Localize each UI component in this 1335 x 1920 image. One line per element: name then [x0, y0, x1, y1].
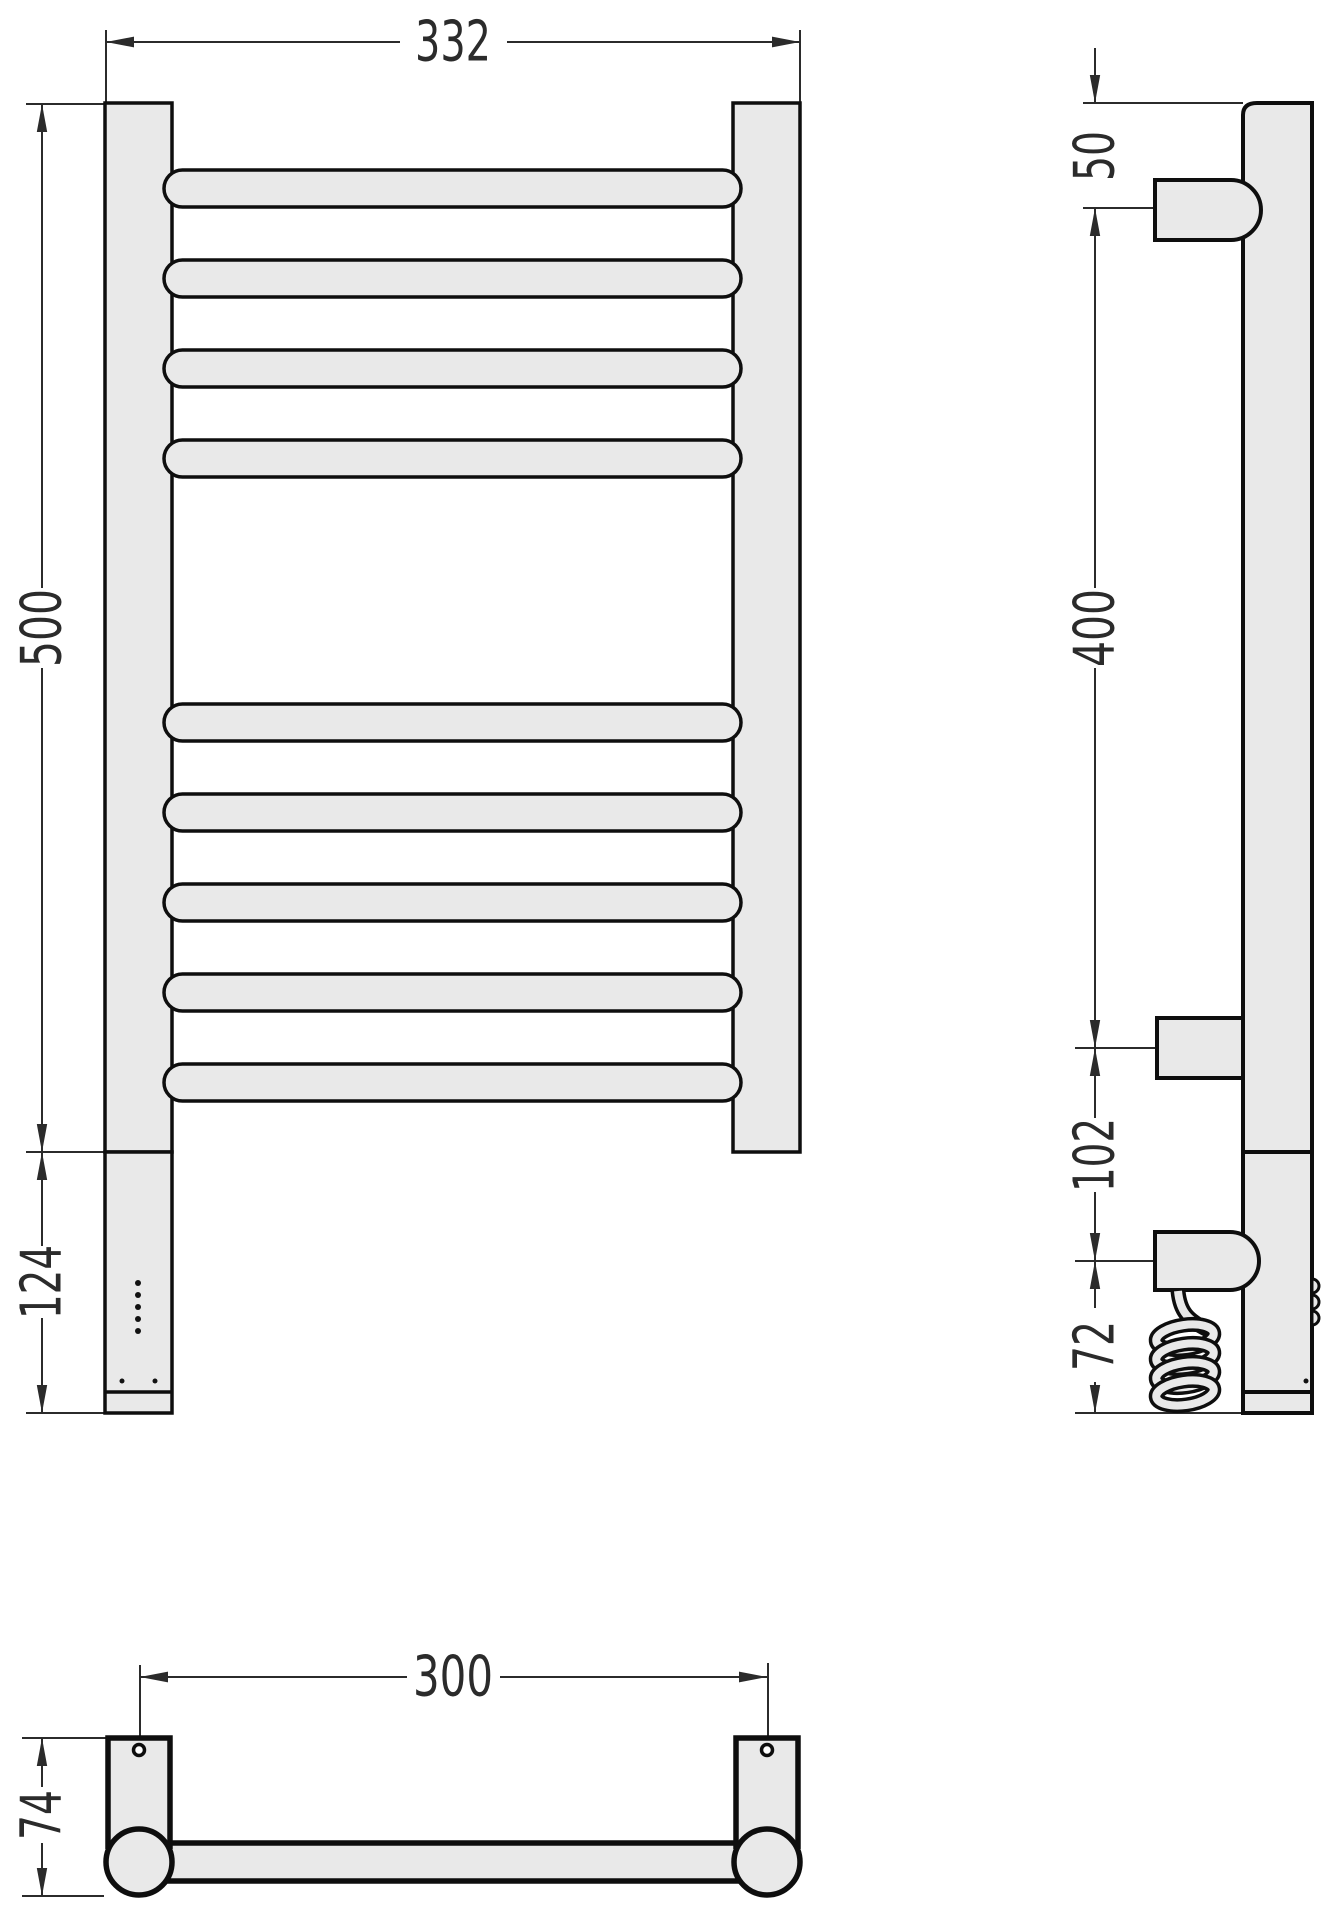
dim-label-front-lower-height: 124	[10, 1245, 75, 1319]
arrowhead	[1090, 1020, 1100, 1048]
towel-rail-technical-drawing: 332 500 124 50 400 102 72 300 74	[0, 0, 1335, 1920]
wall-bracket-middle	[1157, 1018, 1243, 1078]
side-rail-lower	[1243, 1152, 1312, 1413]
thread-bump	[1312, 1311, 1319, 1325]
side-rail-upper	[1243, 103, 1312, 1152]
led-dot	[135, 1304, 141, 1310]
rung	[164, 884, 741, 921]
screw-dot	[120, 1379, 125, 1384]
thread-bump	[1312, 1295, 1319, 1309]
arrowhead	[1090, 208, 1100, 236]
side-view	[1155, 103, 1319, 1413]
dim-label-side-bracket-span: 400	[1063, 589, 1128, 667]
arrowhead	[739, 1672, 767, 1683]
dim-label-side-top-offset: 50	[1063, 131, 1128, 181]
mount-hole	[762, 1745, 773, 1756]
screw-dot	[1304, 1379, 1309, 1384]
rung	[164, 794, 741, 831]
arrowhead	[37, 104, 47, 132]
arrowhead	[1090, 75, 1100, 103]
dim-label-side-lower-gap: 102	[1063, 1118, 1128, 1192]
screw-dot	[153, 1379, 158, 1384]
arrowhead	[1090, 1261, 1100, 1289]
dim-label-depth: 74	[10, 1790, 75, 1840]
dim-label-side-bottom: 72	[1063, 1321, 1128, 1371]
bottom-rail-bar	[139, 1843, 767, 1881]
bottom-view	[106, 1738, 800, 1895]
dim-label-front-height: 500	[10, 589, 75, 667]
arrowhead	[37, 1868, 47, 1896]
coiled-cable	[1155, 1291, 1216, 1409]
post-end-circle	[106, 1829, 172, 1895]
rung	[164, 350, 741, 387]
arrowhead	[772, 37, 800, 48]
rung	[164, 1064, 741, 1101]
arrowhead	[37, 1124, 47, 1152]
front-left-post	[105, 103, 172, 1152]
post-end-circle	[734, 1829, 800, 1895]
drawing-page: 332 500 124 50 400 102 72 300 74	[0, 0, 1335, 1920]
led-dot	[135, 1328, 141, 1334]
wall-bracket-top	[1155, 180, 1261, 240]
arrowhead	[37, 1738, 47, 1766]
wall-bracket-bottom	[1155, 1232, 1259, 1290]
dim-label-front-width: 332	[415, 10, 491, 75]
arrowhead	[1090, 1385, 1100, 1413]
rung	[164, 170, 741, 207]
arrowhead	[1090, 1048, 1100, 1076]
rung	[164, 440, 741, 477]
front-right-post	[733, 103, 800, 1152]
arrowhead	[140, 1672, 168, 1683]
thread-bump	[1312, 1279, 1319, 1293]
arrowhead	[1090, 1233, 1100, 1261]
mount-hole	[134, 1745, 145, 1756]
rung	[164, 704, 741, 741]
rung	[164, 260, 741, 297]
led-dot	[135, 1292, 141, 1298]
dim-label-mount-spacing: 300	[413, 1645, 493, 1710]
led-dot	[135, 1280, 141, 1286]
led-dot	[135, 1316, 141, 1322]
side-view-dimensions	[1075, 48, 1243, 1413]
front-view	[105, 103, 800, 1413]
arrowhead	[37, 1385, 47, 1413]
rung	[164, 974, 741, 1011]
arrowhead	[106, 37, 134, 48]
arrowhead	[37, 1152, 47, 1180]
